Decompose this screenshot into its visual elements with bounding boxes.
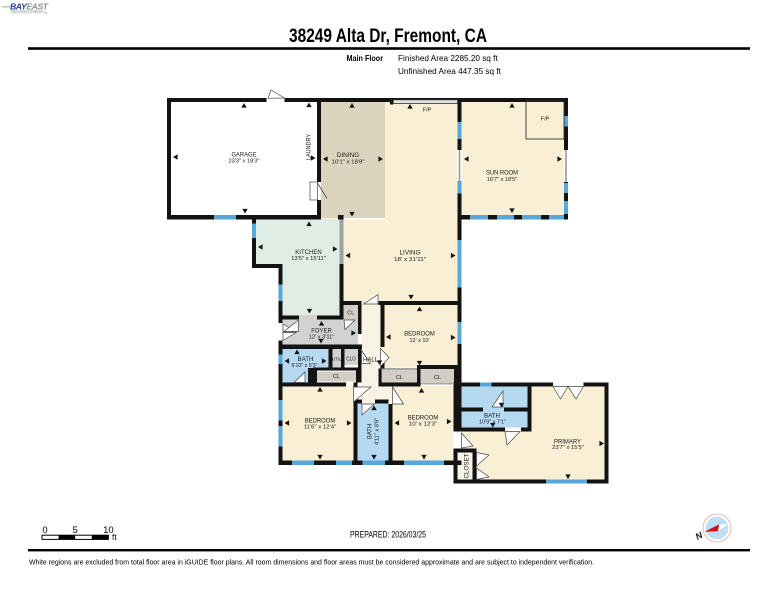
svg-text:4'11" x 8'9": 4'11" x 8'9" [374,418,380,445]
svg-text:12' x 10': 12' x 10' [410,338,430,344]
svg-text:0: 0 [42,525,47,536]
svg-text:11'6" x 12'4": 11'6" x 12'4" [304,424,337,430]
svg-text:BEDROOM: BEDROOM [305,417,336,424]
svg-text:ASSOCIATION OF REALTORS: ASSOCIATION OF REALTORS [11,11,48,15]
svg-text:Main Floor: Main Floor [347,54,384,63]
svg-text:5: 5 [73,525,78,536]
svg-text:13'5" x 15'11": 13'5" x 15'11" [291,256,326,262]
svg-text:10'1" x 18'8": 10'1" x 18'8" [332,159,365,165]
svg-text:BATH: BATH [298,356,314,363]
svg-text:F/P: F/P [541,117,550,123]
svg-text:UTIL: UTIL [332,357,341,363]
svg-text:CL: CL [396,375,403,381]
svg-text:White regions are excluded fro: White regions are excluded from total fl… [29,558,594,567]
svg-text:ft: ft [112,532,117,542]
svg-text:23'7" x 15'5": 23'7" x 15'5" [552,445,584,451]
svg-text:10'9" x 7'1": 10'9" x 7'1" [479,419,506,425]
svg-text:Finished Area 2285.20 sq ft: Finished Area 2285.20 sq ft [398,54,498,63]
svg-text:SUN ROOM: SUN ROOM [486,170,518,177]
svg-text:23'3" x 18'3": 23'3" x 18'3" [229,159,260,165]
svg-text:GARAGE: GARAGE [232,151,257,158]
svg-text:12' x 3'11": 12' x 3'11" [309,335,335,341]
svg-text:LAUNDRY: LAUNDRY [306,134,313,160]
svg-text:PREPARED: 2026/03/25: PREPARED: 2026/03/25 [350,530,426,540]
svg-text:CLO: CLO [346,357,356,363]
svg-text:LIVING: LIVING [400,250,421,257]
svg-text:F/P: F/P [423,108,432,114]
svg-text:BATH: BATH [367,424,374,439]
svg-text:BEDROOM: BEDROOM [408,414,439,421]
svg-text:CLOSET: CLOSET [465,453,471,478]
svg-text:BEDROOM: BEDROOM [404,330,435,337]
svg-text:KITCHEN: KITCHEN [295,249,322,256]
svg-text:16'7" x 18'5": 16'7" x 18'5" [487,177,518,183]
svg-text:BATH: BATH [484,412,500,419]
svg-text:CL: CL [347,311,354,317]
svg-text:CL: CL [434,375,441,381]
svg-text:38249 Alta Dr, Fremont, CA: 38249 Alta Dr, Fremont, CA [289,26,487,47]
svg-text:BAYEAST: BAYEAST [10,2,49,12]
svg-text:Unfinished Area 447.35 sq ft: Unfinished Area 447.35 sq ft [398,67,502,76]
svg-text:DINING: DINING [337,152,360,159]
svg-text:10' x 12'3": 10' x 12'3" [409,421,438,427]
svg-text:CL: CL [333,374,340,380]
svg-text:6'10" x 5'3": 6'10" x 5'3" [292,363,318,369]
svg-text:HALL: HALL [363,357,378,364]
svg-text:18' x 31'11": 18' x 31'11" [394,257,426,263]
